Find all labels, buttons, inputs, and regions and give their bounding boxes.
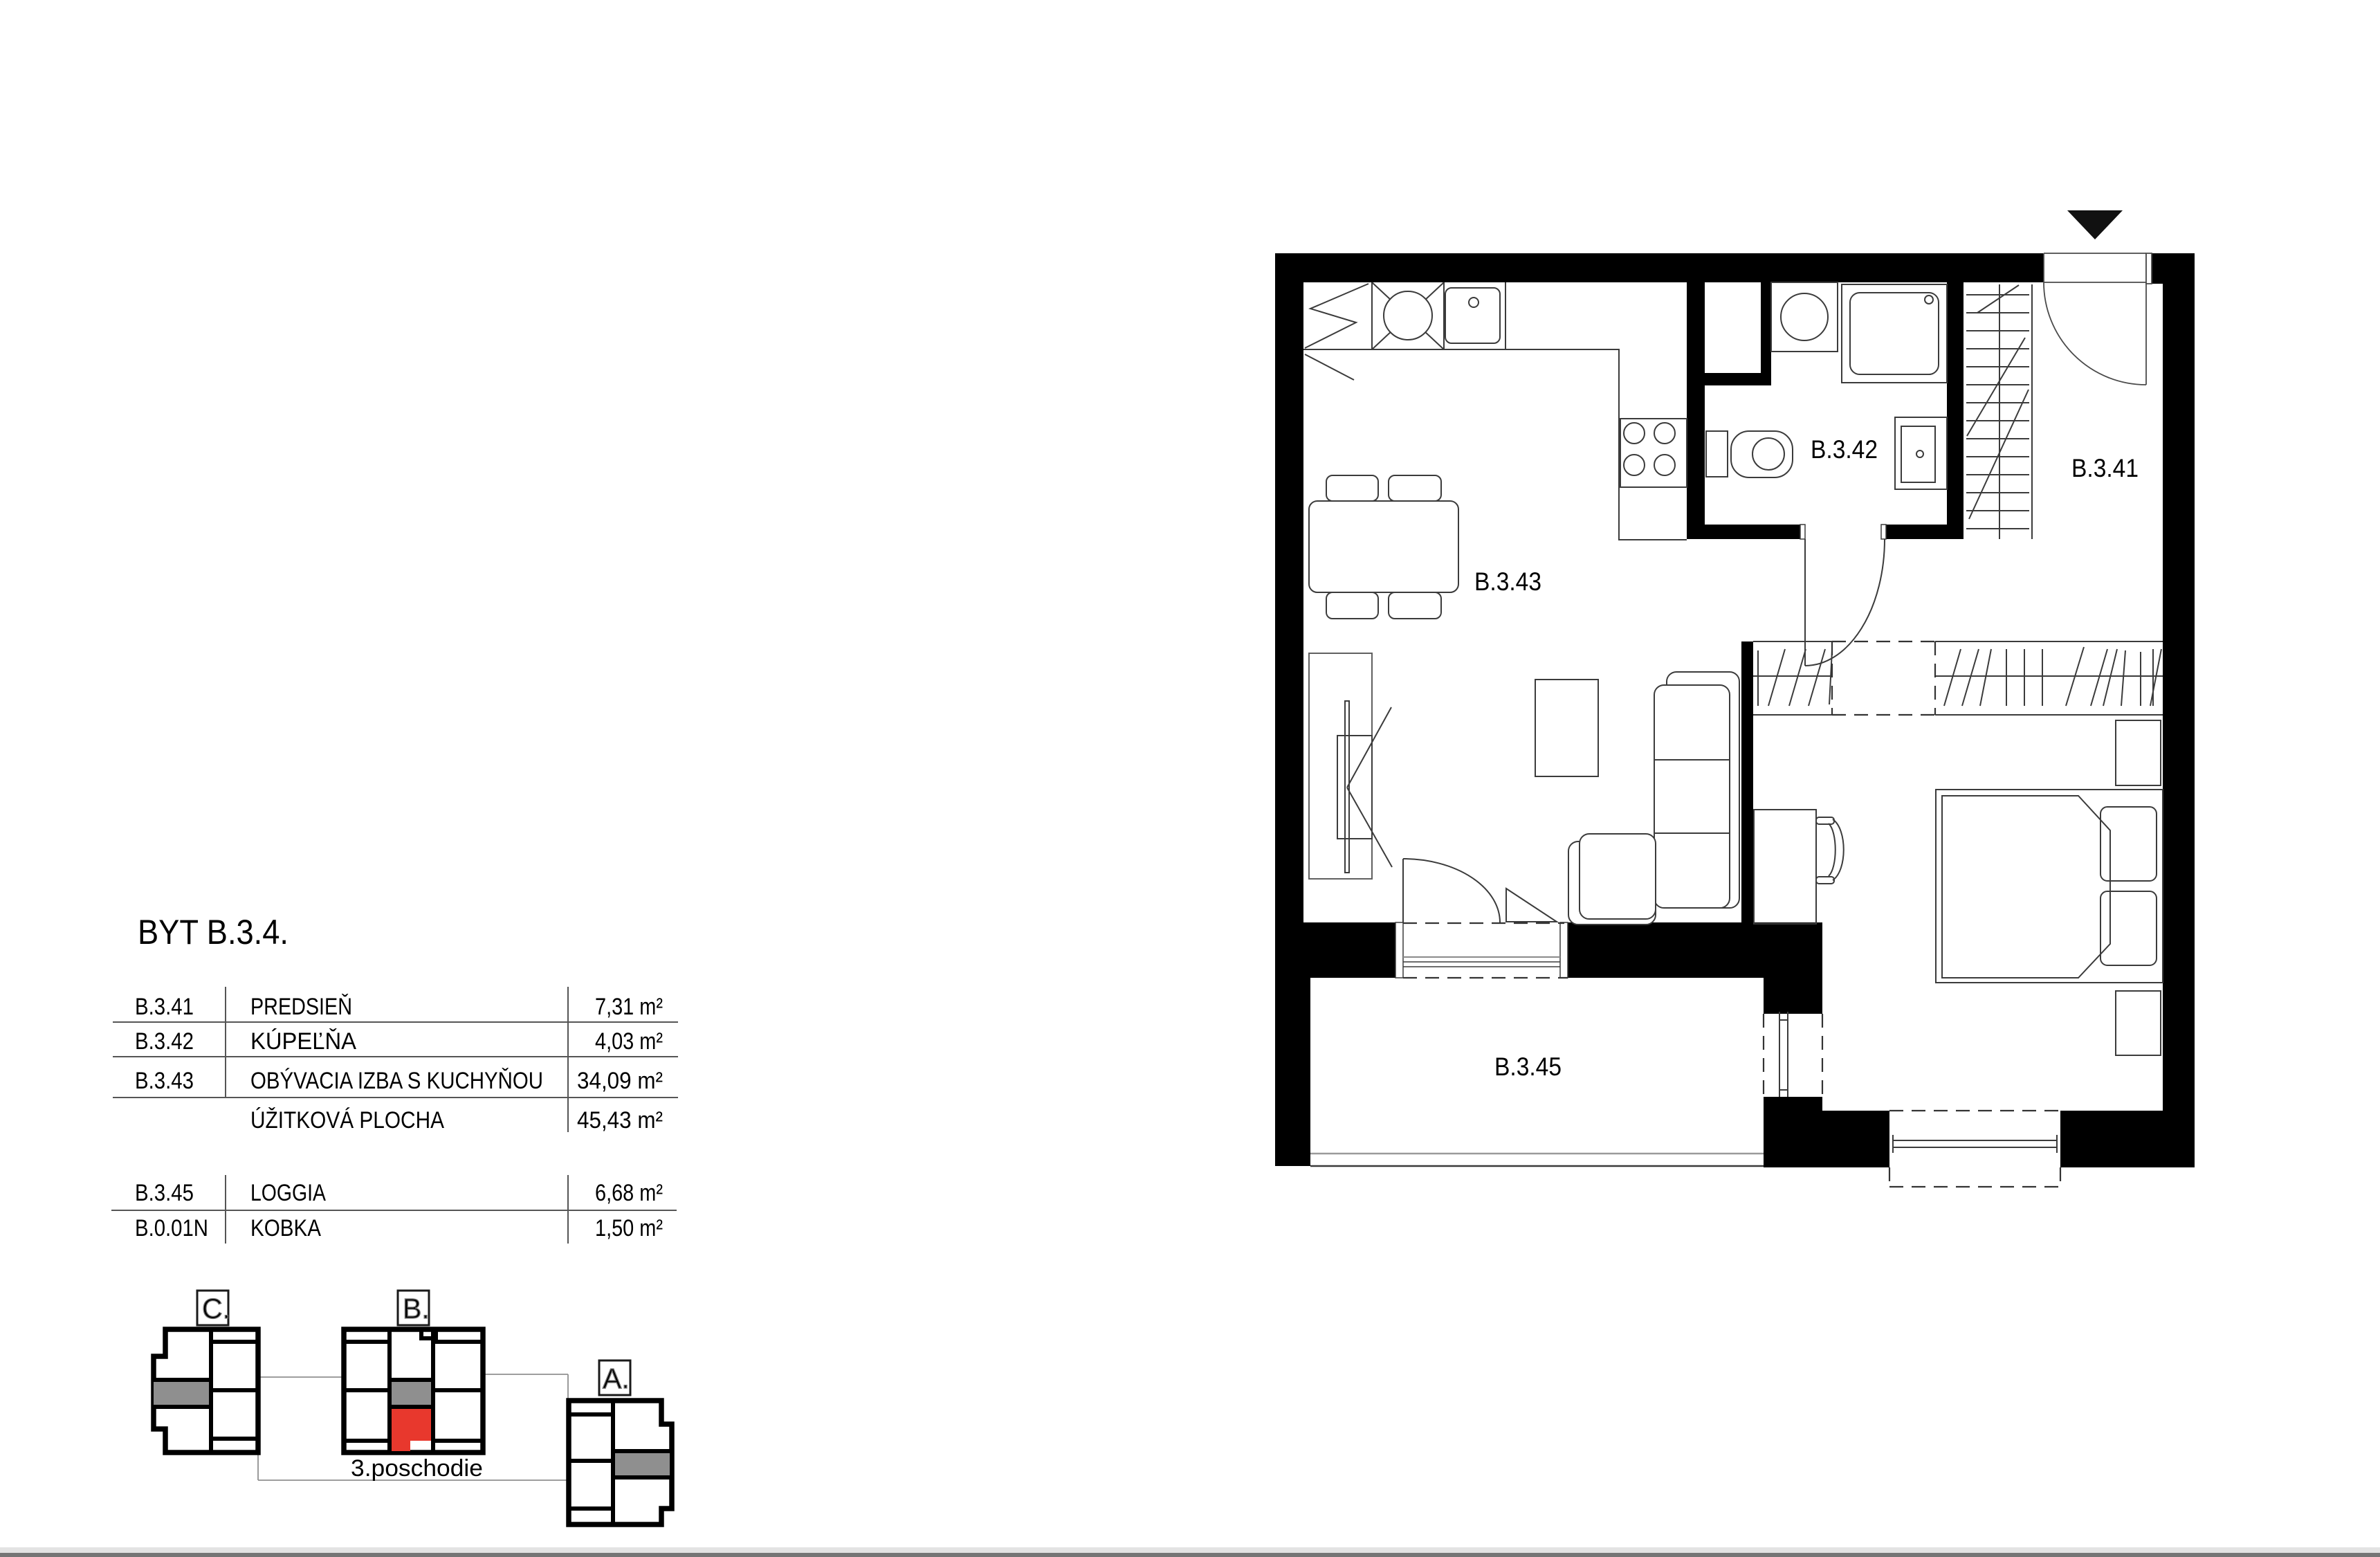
svg-text:7,31 m²: 7,31 m² xyxy=(595,994,663,1020)
svg-text:B.: B. xyxy=(403,1293,430,1324)
svg-text:B.3.42: B.3.42 xyxy=(1811,435,1878,464)
svg-text:B.3.45: B.3.45 xyxy=(135,1180,194,1206)
svg-text:B.3.45: B.3.45 xyxy=(1494,1053,1562,1081)
svg-text:LOGGIA: LOGGIA xyxy=(250,1180,326,1206)
svg-text:ÚŽITKOVÁ PLOCHA: ÚŽITKOVÁ PLOCHA xyxy=(250,1107,444,1133)
svg-text:BYT B.3.4.: BYT B.3.4. xyxy=(138,913,289,951)
svg-text:B.3.41: B.3.41 xyxy=(135,994,194,1020)
svg-text:6,68 m²: 6,68 m² xyxy=(595,1180,663,1206)
svg-text:C.: C. xyxy=(202,1293,230,1324)
svg-text:4,03 m²: 4,03 m² xyxy=(595,1028,663,1055)
svg-text:KOBKA: KOBKA xyxy=(250,1215,321,1241)
svg-text:45,43 m²: 45,43 m² xyxy=(577,1107,663,1133)
svg-text:OBÝVACIA IZBA S KUCHYŇOU: OBÝVACIA IZBA S KUCHYŇOU xyxy=(250,1068,543,1094)
svg-text:B.3.43: B.3.43 xyxy=(135,1068,194,1094)
svg-text:34,09 m²: 34,09 m² xyxy=(577,1068,663,1094)
svg-text:1,50 m²: 1,50 m² xyxy=(595,1215,663,1241)
svg-text:B.3.42: B.3.42 xyxy=(135,1028,194,1055)
svg-text:KÚPEĽŇA: KÚPEĽŇA xyxy=(250,1028,356,1055)
svg-text:B.3.41: B.3.41 xyxy=(2071,454,2139,482)
svg-text:A.: A. xyxy=(603,1363,630,1394)
svg-text:PREDSIEŇ: PREDSIEŇ xyxy=(250,994,352,1020)
svg-text:B.3.43: B.3.43 xyxy=(1474,567,1541,596)
svg-text:3.poschodie: 3.poschodie xyxy=(351,1455,483,1482)
svg-text:B.0.01N: B.0.01N xyxy=(135,1215,208,1241)
